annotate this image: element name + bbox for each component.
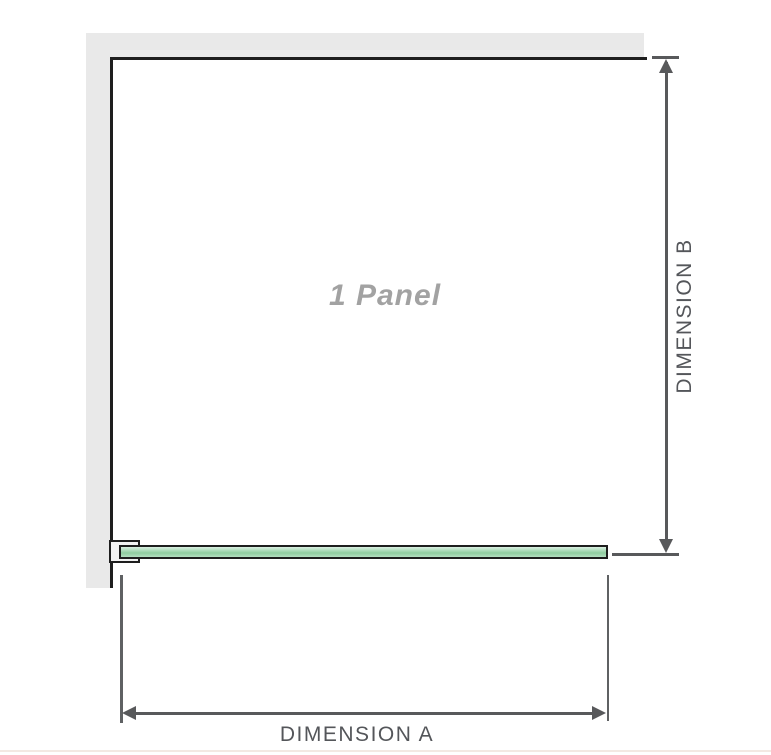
- panel-outline-top: [110, 57, 647, 60]
- panel-dimension-diagram: 1 Panel DIMENSION B DIMENSION A: [0, 0, 771, 755]
- dimension-a-extension-right: [607, 575, 610, 721]
- bottom-divider: [0, 750, 771, 752]
- panel-outline-left: [110, 57, 113, 588]
- dimension-b-arrowhead-down-icon: [659, 539, 673, 553]
- dimension-b-label: DIMENSION B: [673, 238, 697, 393]
- wall-band-left: [86, 33, 110, 588]
- wall-band-top: [86, 33, 644, 59]
- glass-panel: [119, 545, 608, 559]
- dimension-a-line: [134, 712, 594, 715]
- dimension-b-tick-bottom: [612, 553, 679, 556]
- panel-count-label: 1 Panel: [235, 279, 535, 313]
- dimension-b-line: [665, 62, 668, 542]
- dimension-a-extension-left: [120, 575, 123, 723]
- dimension-a-arrowhead-right-icon: [592, 706, 606, 720]
- dimension-a-label: DIMENSION A: [257, 723, 457, 747]
